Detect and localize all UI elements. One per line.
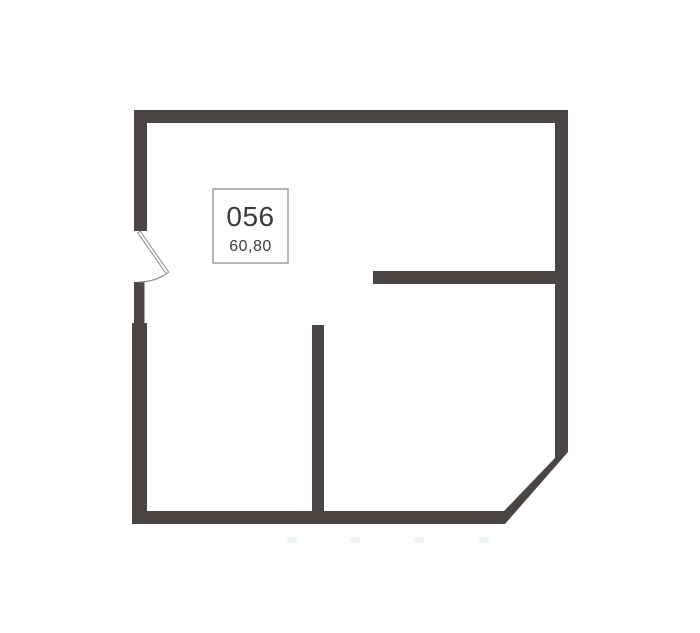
- wall-interior-horizontal: [373, 271, 555, 284]
- door-symbol: [138, 231, 169, 282]
- faint-artifact-dot: [414, 537, 424, 543]
- wall-left-below-door: [134, 282, 145, 323]
- wall-left-upper: [134, 110, 147, 231]
- wall-bottom: [132, 511, 505, 524]
- wall-top: [134, 110, 568, 123]
- wall-right: [555, 110, 568, 452]
- exterior-walls: [132, 110, 568, 524]
- wall-left-lower: [132, 323, 147, 524]
- floorplan-svg: 056 60,80: [0, 0, 700, 633]
- faint-artifact-dots: [287, 537, 489, 543]
- wall-chamfer-corner: [504, 452, 568, 524]
- door-leaf: [138, 231, 169, 274]
- wall-interior-vertical: [312, 325, 324, 511]
- interior-walls: [312, 271, 555, 511]
- door-swing-arc-line: [138, 273, 168, 282]
- unit-label: 056 60,80: [213, 189, 288, 263]
- faint-artifact-dot: [287, 537, 297, 543]
- unit-number: 056: [226, 201, 274, 232]
- unit-area: 60,80: [229, 238, 272, 255]
- faint-artifact-dot: [479, 537, 489, 543]
- floorplan-canvas: 056 60,80: [0, 0, 700, 633]
- faint-artifact-dot: [350, 537, 360, 543]
